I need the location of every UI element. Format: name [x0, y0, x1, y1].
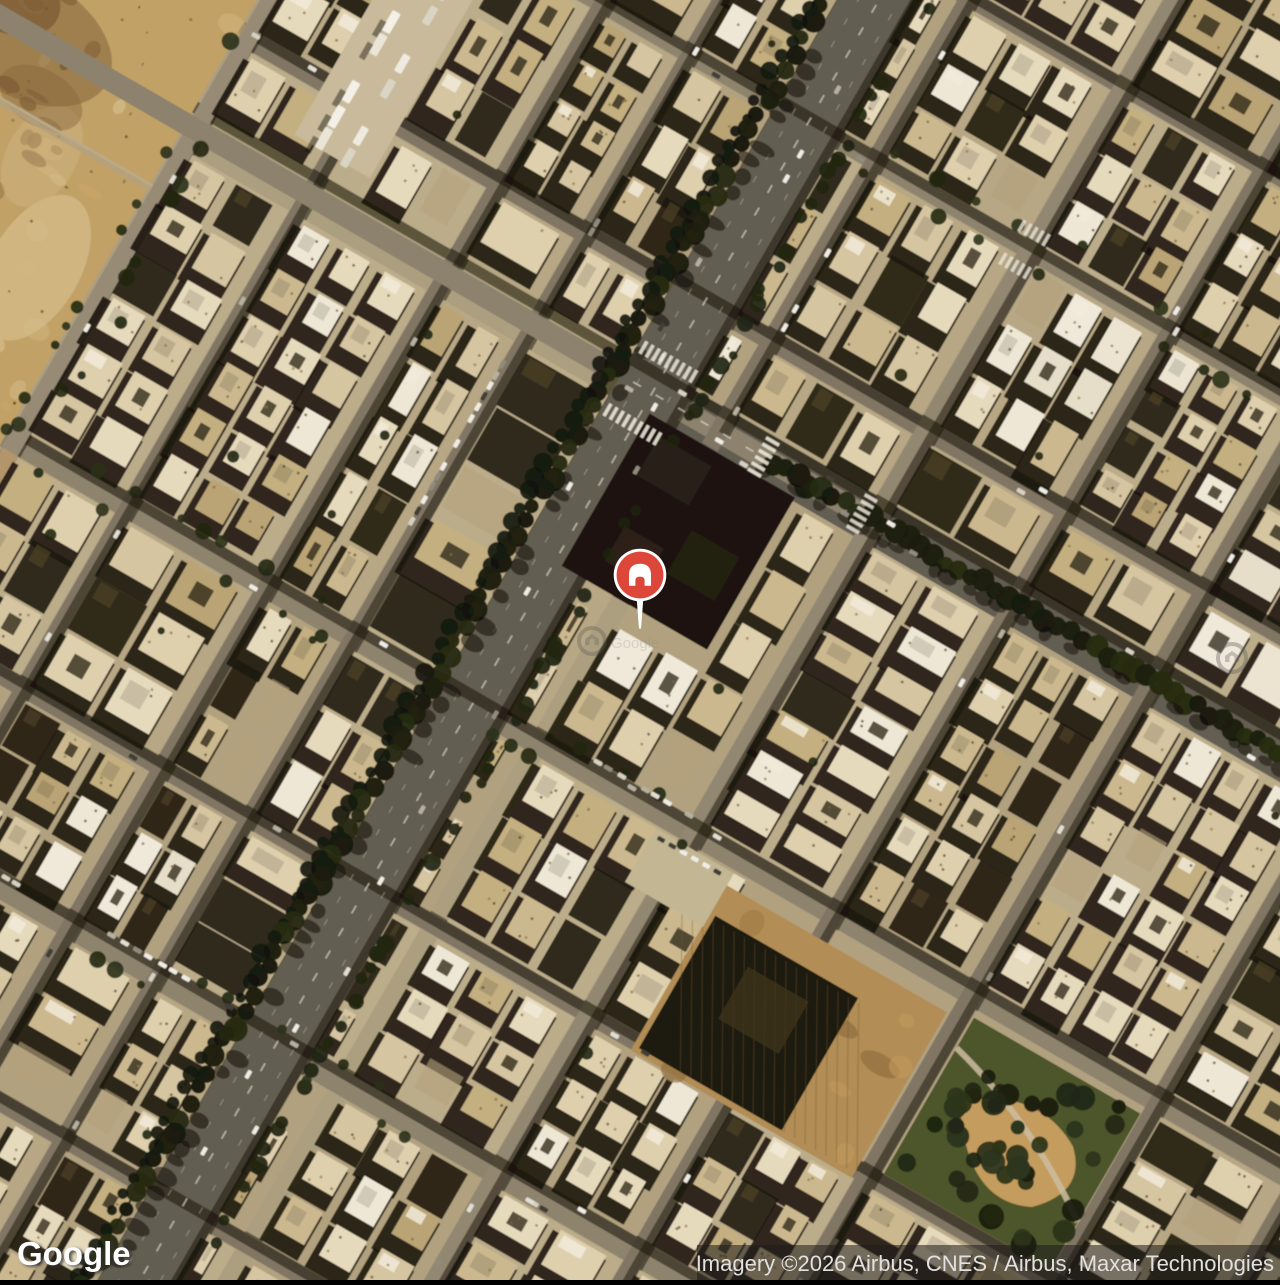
svg-text:Google: Google	[611, 635, 659, 652]
svg-text:Imagery ©2026 Airbus, CNES / A: Imagery ©2026 Airbus, CNES / Airbus, Max…	[696, 1251, 1274, 1276]
svg-text:Google: Google	[17, 1235, 131, 1272]
